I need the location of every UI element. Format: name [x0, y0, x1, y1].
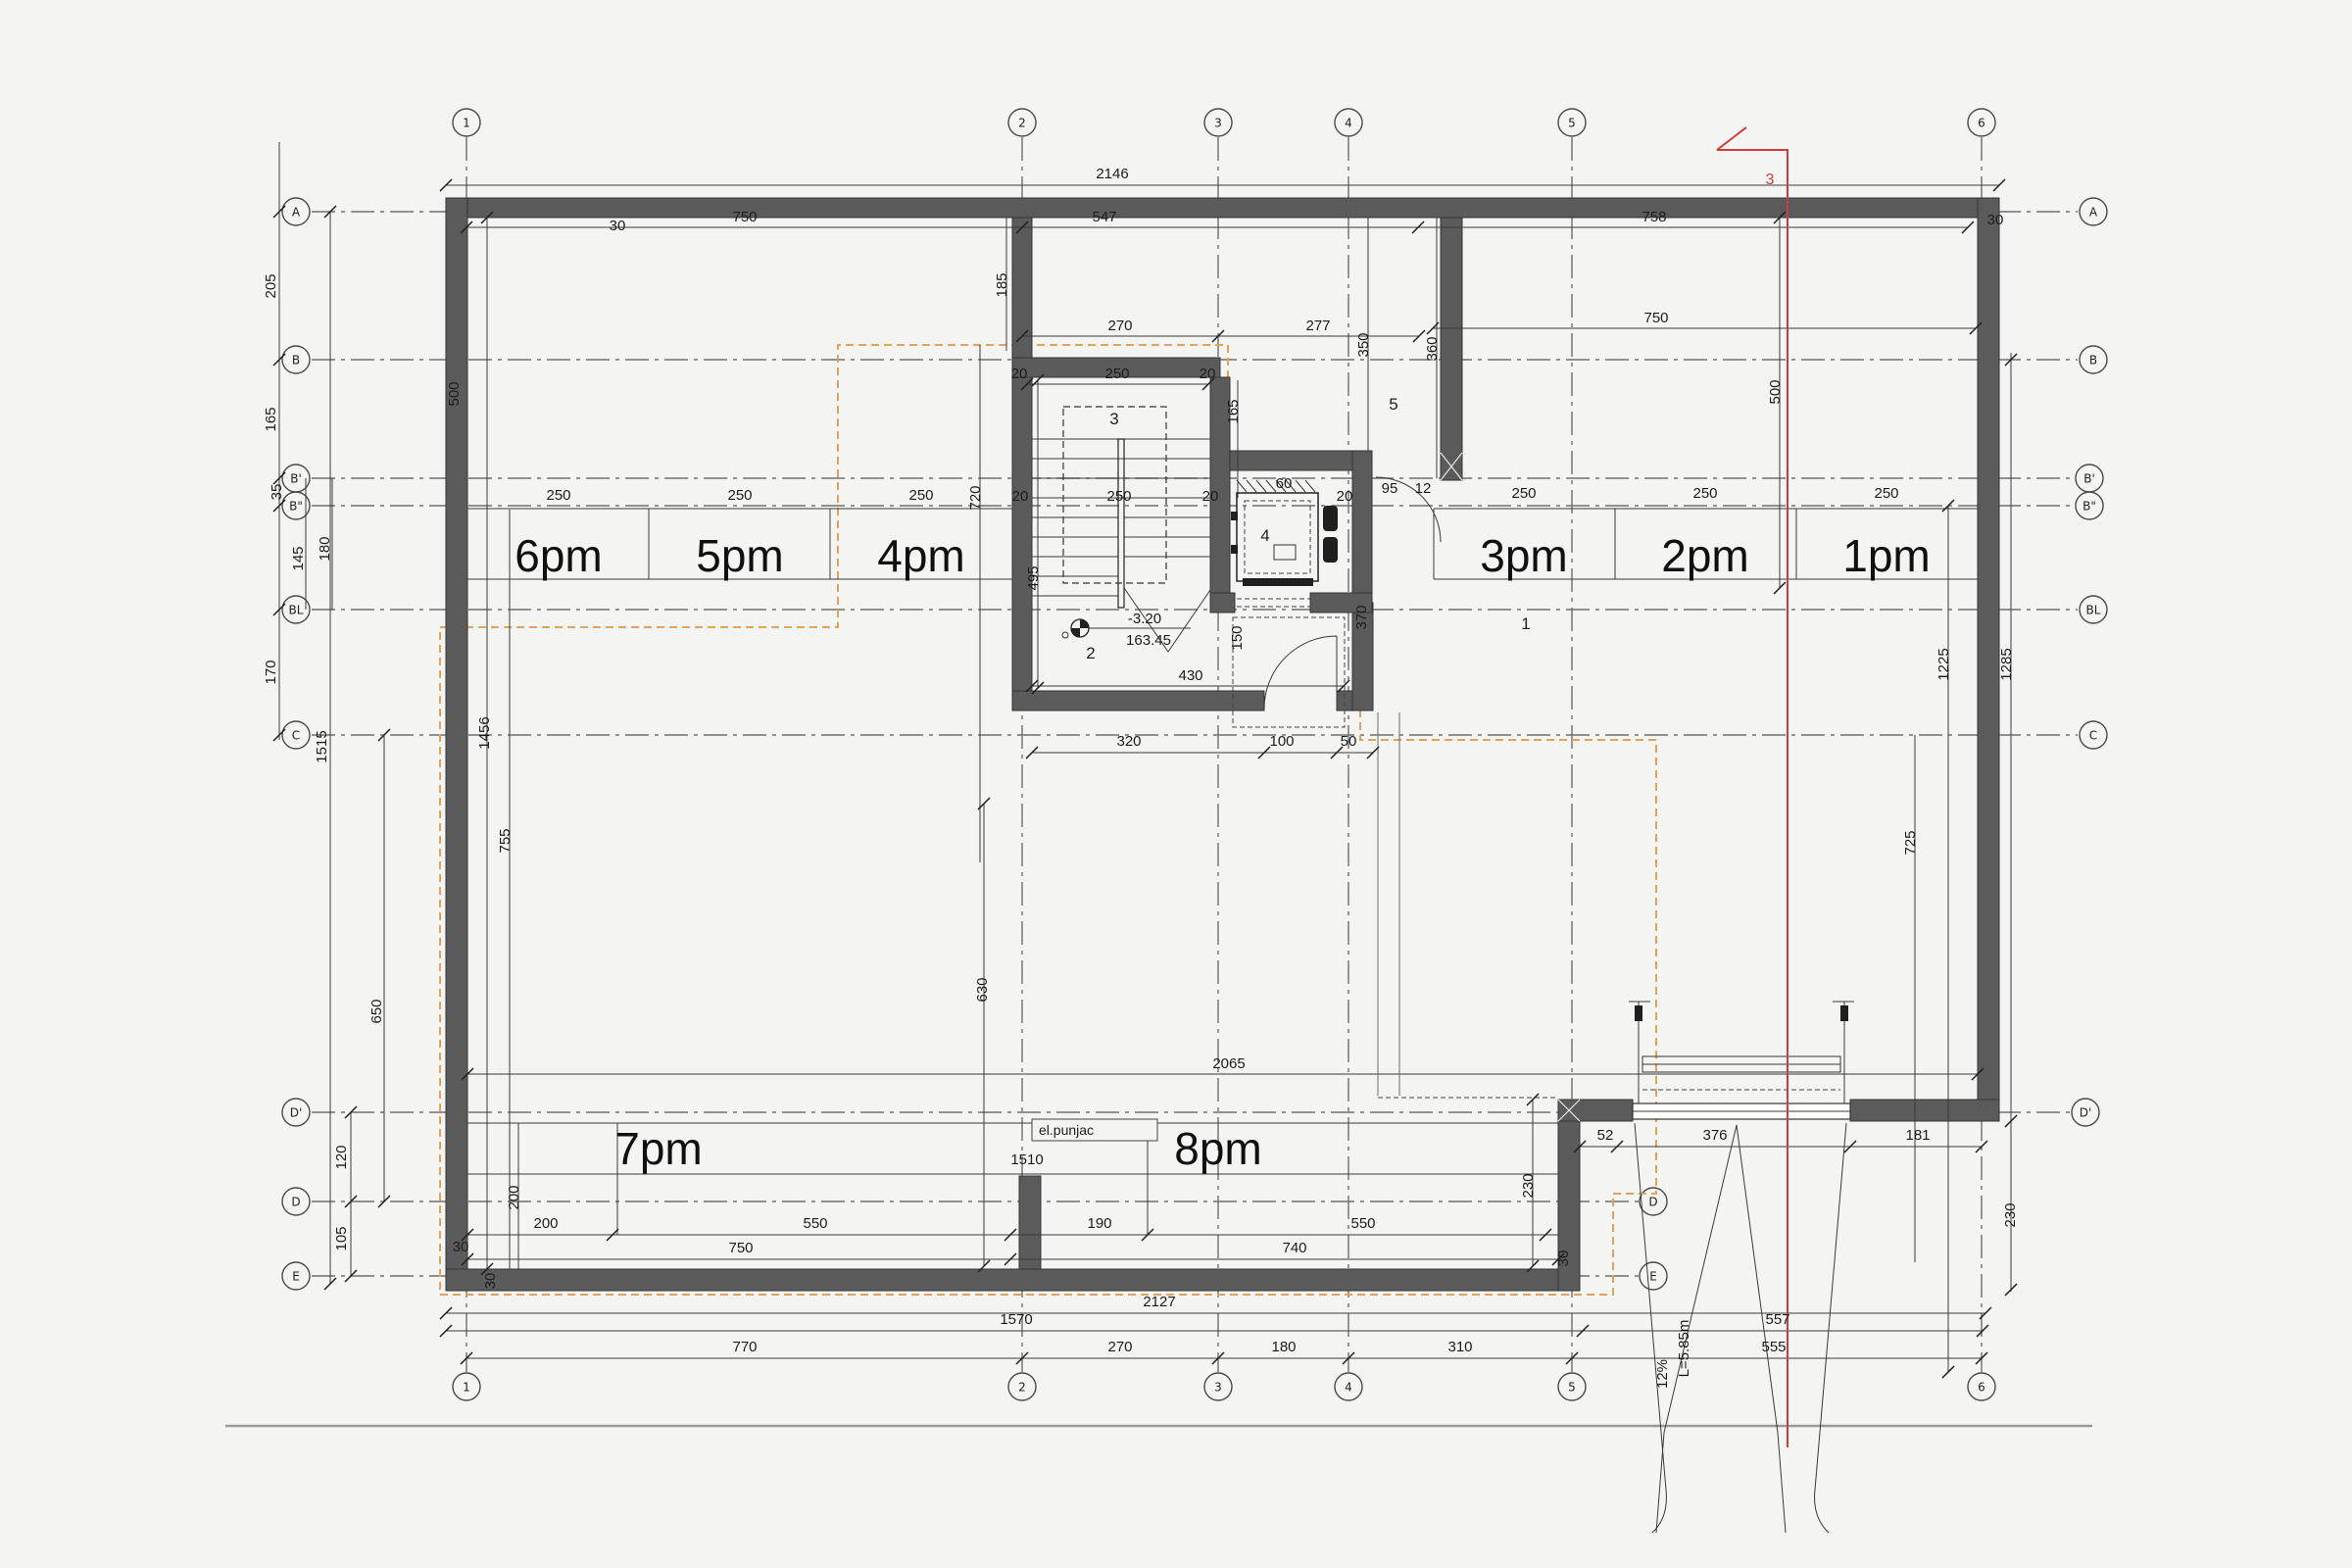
dimension-label-vertical: 755 — [497, 828, 514, 853]
dimension-label: 190 — [1087, 1215, 1111, 1232]
dimension-label: 750 — [732, 209, 757, 225]
grid-row-label: BL — [289, 604, 304, 617]
dimension-label: 750 — [1643, 310, 1668, 326]
dimension-label: 181 — [1905, 1127, 1930, 1144]
grid-row-label: B — [292, 354, 300, 367]
dimension-label-vertical: 1456 — [476, 716, 493, 749]
wall-elevator-north — [1230, 451, 1372, 470]
wall-top — [446, 198, 1999, 218]
grid-column-label: 4 — [1345, 117, 1352, 130]
dimension-label: 50 — [1341, 733, 1357, 750]
section-label: 3 — [1766, 171, 1775, 188]
dimension-label-vertical: L=5.85m — [1676, 1320, 1692, 1378]
elevator-counterweight — [1323, 506, 1338, 531]
level-value: -3.20 — [1128, 611, 1161, 627]
dimension-label: 1570 — [1000, 1311, 1032, 1328]
wall-right — [1978, 198, 1999, 1121]
dimension-label-vertical: 630 — [974, 977, 991, 1002]
grid-row-label: B" — [2082, 500, 2096, 514]
elevator-control-box — [1274, 545, 1296, 560]
dimension-label-vertical: 30 — [482, 1273, 499, 1290]
grid-row-label: D' — [2080, 1106, 2092, 1120]
grid-row-label: E — [1649, 1270, 1657, 1284]
dimension-label-vertical: 35 — [269, 484, 285, 501]
dimension-label-vertical: 725 — [1902, 830, 1919, 855]
grid-row-label: B" — [289, 500, 303, 514]
dimension-label: 310 — [1447, 1339, 1472, 1355]
dimension-label: 277 — [1305, 318, 1330, 334]
grid-row-label: A — [2089, 206, 2098, 220]
grid-row-label: C — [292, 729, 300, 743]
dimension-label: 60 — [1276, 475, 1293, 492]
dimension-label: 2065 — [1212, 1055, 1245, 1072]
elevator-guide-rail — [1231, 512, 1238, 520]
wall-elevator-south-left — [1210, 593, 1235, 612]
zone-number: 2 — [1086, 644, 1095, 662]
grid-row-label: D — [1648, 1196, 1657, 1209]
dimension-label-vertical: 350 — [1355, 332, 1372, 357]
ev-charger-label: el.punjac — [1039, 1122, 1094, 1138]
grid-column-label: 2 — [1018, 1381, 1026, 1395]
dimension-label: 250 — [727, 487, 752, 504]
dimension-label: 95 — [1382, 480, 1398, 497]
dimension-label-vertical: 1225 — [1935, 648, 1952, 680]
dimension-label: 430 — [1178, 667, 1202, 684]
dimension-label: 200 — [533, 1215, 558, 1232]
dimension-label: 20 — [1202, 488, 1219, 505]
dimension-label-vertical: 495 — [1025, 565, 1042, 590]
level-elevation: 163.45 — [1126, 632, 1171, 649]
dimension-label-vertical: 120 — [333, 1145, 350, 1169]
dimension-label: 250 — [1106, 488, 1131, 505]
dimension-label: 270 — [1107, 318, 1132, 334]
dimension-label-vertical: 650 — [368, 999, 385, 1023]
dimension-label: 1510 — [1010, 1151, 1043, 1168]
dimension-label: 557 — [1765, 1311, 1789, 1328]
dimension-label-vertical: 165 — [263, 407, 279, 431]
dimension-label: 250 — [546, 487, 570, 504]
wall-garage-right — [1850, 1100, 1999, 1121]
dimension-label: 770 — [732, 1339, 757, 1355]
dimension-label-vertical: 165 — [1225, 399, 1242, 423]
zone-number: 3 — [1109, 410, 1118, 428]
dimension-label-vertical: 200 — [506, 1185, 522, 1209]
dimension-label: 550 — [1350, 1215, 1375, 1232]
parking-space-label: 1pm — [1842, 530, 1930, 581]
elevator-counterweight — [1323, 537, 1338, 563]
wall-charger-stub — [1019, 1176, 1041, 1269]
drawing-sheet: 112233445566AABBB'B'B"B"BLBLCCD'D'DDEE — [0, 0, 2352, 1568]
dimension-label-vertical: 360 — [1424, 336, 1441, 361]
dimension-label-vertical: 105 — [333, 1226, 350, 1250]
wall-left — [446, 198, 467, 1291]
grid-row-label: B' — [2083, 472, 2095, 486]
parking-space-label: 7pm — [614, 1123, 702, 1174]
grid-column-label: 1 — [463, 1381, 470, 1395]
elevator-door-dashed — [1237, 599, 1310, 607]
grid-column-label: 4 — [1345, 1381, 1352, 1395]
garage-door-tracks — [1629, 1002, 1854, 1103]
parking-space-label: 5pm — [696, 530, 783, 581]
staircase — [1032, 407, 1210, 652]
dimension-label: 550 — [803, 1215, 827, 1232]
dimension-label: 20 — [1011, 366, 1028, 382]
aisle-lines — [1378, 712, 1556, 1098]
dimension-label: 547 — [1092, 209, 1116, 225]
dimension-label-vertical: 185 — [994, 272, 1010, 297]
garage-door-roller — [1635, 1005, 1642, 1021]
dimension-label: 30 — [453, 1239, 469, 1255]
stair-rail-end — [1062, 632, 1068, 638]
garage-door-roller — [1840, 1005, 1848, 1021]
zone-number: 4 — [1260, 526, 1269, 545]
dimension-label: 30 — [1987, 212, 2004, 228]
parking-space-label: 6pm — [514, 530, 602, 581]
section-line: 3 — [1717, 127, 1788, 1447]
dimension-label: 250 — [1104, 366, 1129, 382]
wall-elevator-east — [1352, 451, 1372, 612]
dimension-label-vertical: 230 — [2002, 1202, 2019, 1227]
dimension-label: 270 — [1107, 1339, 1132, 1355]
dimension-label-vertical: 1515 — [314, 730, 330, 762]
parking-space-label: 3pm — [1480, 530, 1567, 581]
zone-number: 5 — [1389, 395, 1397, 414]
elevator-car-inner — [1245, 501, 1310, 573]
dimension-label-vertical: 30 — [1555, 1250, 1572, 1267]
door-swing-lobby — [1264, 636, 1337, 709]
dimension-label: 20 — [1337, 488, 1353, 505]
dimension-label-vertical: 1285 — [1998, 648, 2015, 680]
dimension-label-vertical: 720 — [967, 485, 984, 510]
dimension-label: 750 — [728, 1240, 753, 1256]
dimension-labels: 2146750547758270277750250202025025025025… — [263, 166, 2019, 1389]
wall-bottom — [446, 1269, 1580, 1291]
dimension-label: 2146 — [1096, 166, 1128, 182]
grid-column-label: 5 — [1568, 117, 1576, 130]
ev-charger: el.punjac — [1032, 1119, 1157, 1141]
grid-column-label: 3 — [1214, 117, 1222, 130]
dimension-label: 376 — [1702, 1127, 1727, 1144]
dimension-lines — [279, 142, 2011, 1372]
grid-row-label: C — [2089, 729, 2097, 743]
dimension-label: 20 — [1200, 366, 1216, 382]
dimension-label: 52 — [1597, 1127, 1614, 1144]
dimension-label-vertical: 145 — [290, 546, 307, 570]
grid-system: 112233445566AABBB'B'B"B"BLBLCCD'D'DDEE — [282, 109, 2107, 1400]
dimension-label: 2127 — [1143, 1294, 1175, 1310]
dimension-label-vertical: 500 — [1767, 379, 1784, 404]
dimension-label: 12 — [1415, 480, 1432, 497]
dimension-label: 320 — [1116, 733, 1141, 750]
dimension-label: 30 — [610, 218, 626, 234]
dimension-label: 250 — [1874, 485, 1898, 502]
wall-interior-top-right — [1441, 218, 1462, 480]
wall-stair-west — [1012, 377, 1032, 710]
grid-row-label: BL — [2086, 604, 2101, 617]
dimension-label: 100 — [1269, 733, 1294, 750]
wall-lobby-south — [1012, 691, 1264, 710]
zone-number: 1 — [1521, 614, 1530, 633]
grid-column-label: 6 — [1978, 117, 1985, 130]
dimension-label-vertical: 205 — [263, 273, 279, 298]
dimension-label: 740 — [1282, 1240, 1306, 1256]
dimension-label: 250 — [1692, 485, 1717, 502]
parking-space-label: 8pm — [1174, 1123, 1261, 1174]
dimension-label-vertical: 12% — [1654, 1359, 1671, 1389]
dimension-label-vertical: 150 — [1229, 625, 1246, 650]
grid-column-label: 3 — [1214, 1381, 1222, 1395]
stair-rail — [1118, 439, 1124, 608]
dimension-label-vertical: 170 — [263, 660, 279, 684]
elevator-door-mechanism — [1243, 578, 1313, 586]
dimension-label: 555 — [1761, 1339, 1786, 1355]
elevator-guide-rail — [1231, 545, 1238, 554]
ramp-lines — [1635, 1123, 1846, 1533]
grid-column-label: 2 — [1018, 117, 1026, 130]
grid-row-label: E — [292, 1270, 300, 1284]
garage-entry — [1629, 1002, 1854, 1533]
floor-plan-canvas: 112233445566AABBB'B'B"B"BLBLCCD'D'DDEE — [0, 0, 2352, 1568]
grid-column-label: 6 — [1978, 1381, 1985, 1395]
grid-column-label: 1 — [463, 117, 470, 130]
dimension-label: 20 — [1012, 488, 1029, 505]
dimension-label: 180 — [1271, 1339, 1296, 1355]
parking-space-label: 4pm — [877, 530, 964, 581]
dimension-label: 250 — [1511, 485, 1536, 502]
dimension-label-vertical: 180 — [317, 536, 333, 561]
grid-row-label: B' — [290, 472, 302, 486]
grid-row-label: D — [291, 1196, 300, 1209]
dimension-label: 250 — [908, 487, 933, 504]
parking-space-label: 2pm — [1661, 530, 1748, 581]
grid-row-label: D' — [290, 1106, 303, 1120]
grid-column-label: 5 — [1568, 1381, 1576, 1395]
grid-row-label: A — [292, 206, 301, 220]
dimension-label-vertical: 230 — [1520, 1173, 1537, 1198]
dimension-label-vertical: 370 — [1353, 605, 1370, 629]
dimension-label-vertical: 500 — [446, 381, 463, 406]
grid-row-label: B — [2089, 354, 2097, 367]
dimension-label: 758 — [1641, 209, 1666, 225]
